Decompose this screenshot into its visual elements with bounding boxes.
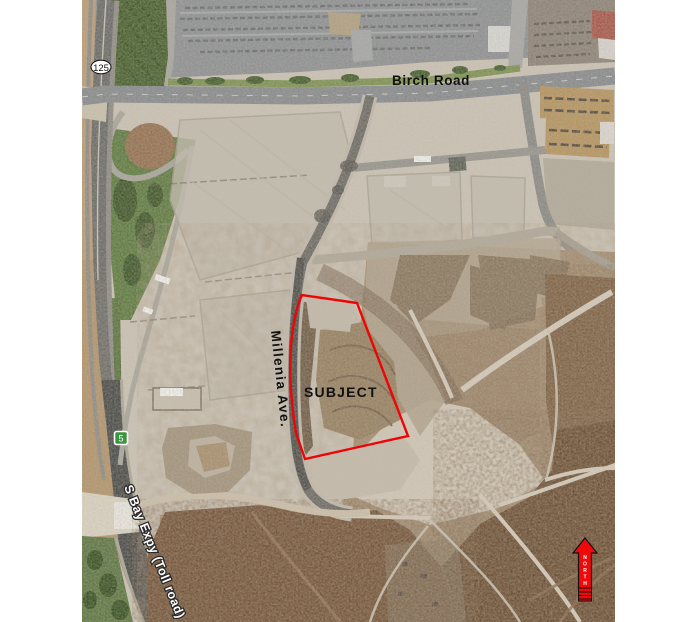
- svg-text:R: R: [583, 568, 587, 574]
- svg-text:125: 125: [93, 63, 109, 74]
- svg-text:O: O: [583, 562, 587, 568]
- svg-text:T: T: [583, 575, 586, 581]
- svg-text:5: 5: [118, 434, 123, 444]
- svg-text:Birch Road: Birch Road: [392, 73, 470, 88]
- svg-text:N: N: [583, 555, 587, 561]
- svg-text:H: H: [583, 581, 587, 587]
- svg-text:SUBJECT: SUBJECT: [304, 384, 378, 400]
